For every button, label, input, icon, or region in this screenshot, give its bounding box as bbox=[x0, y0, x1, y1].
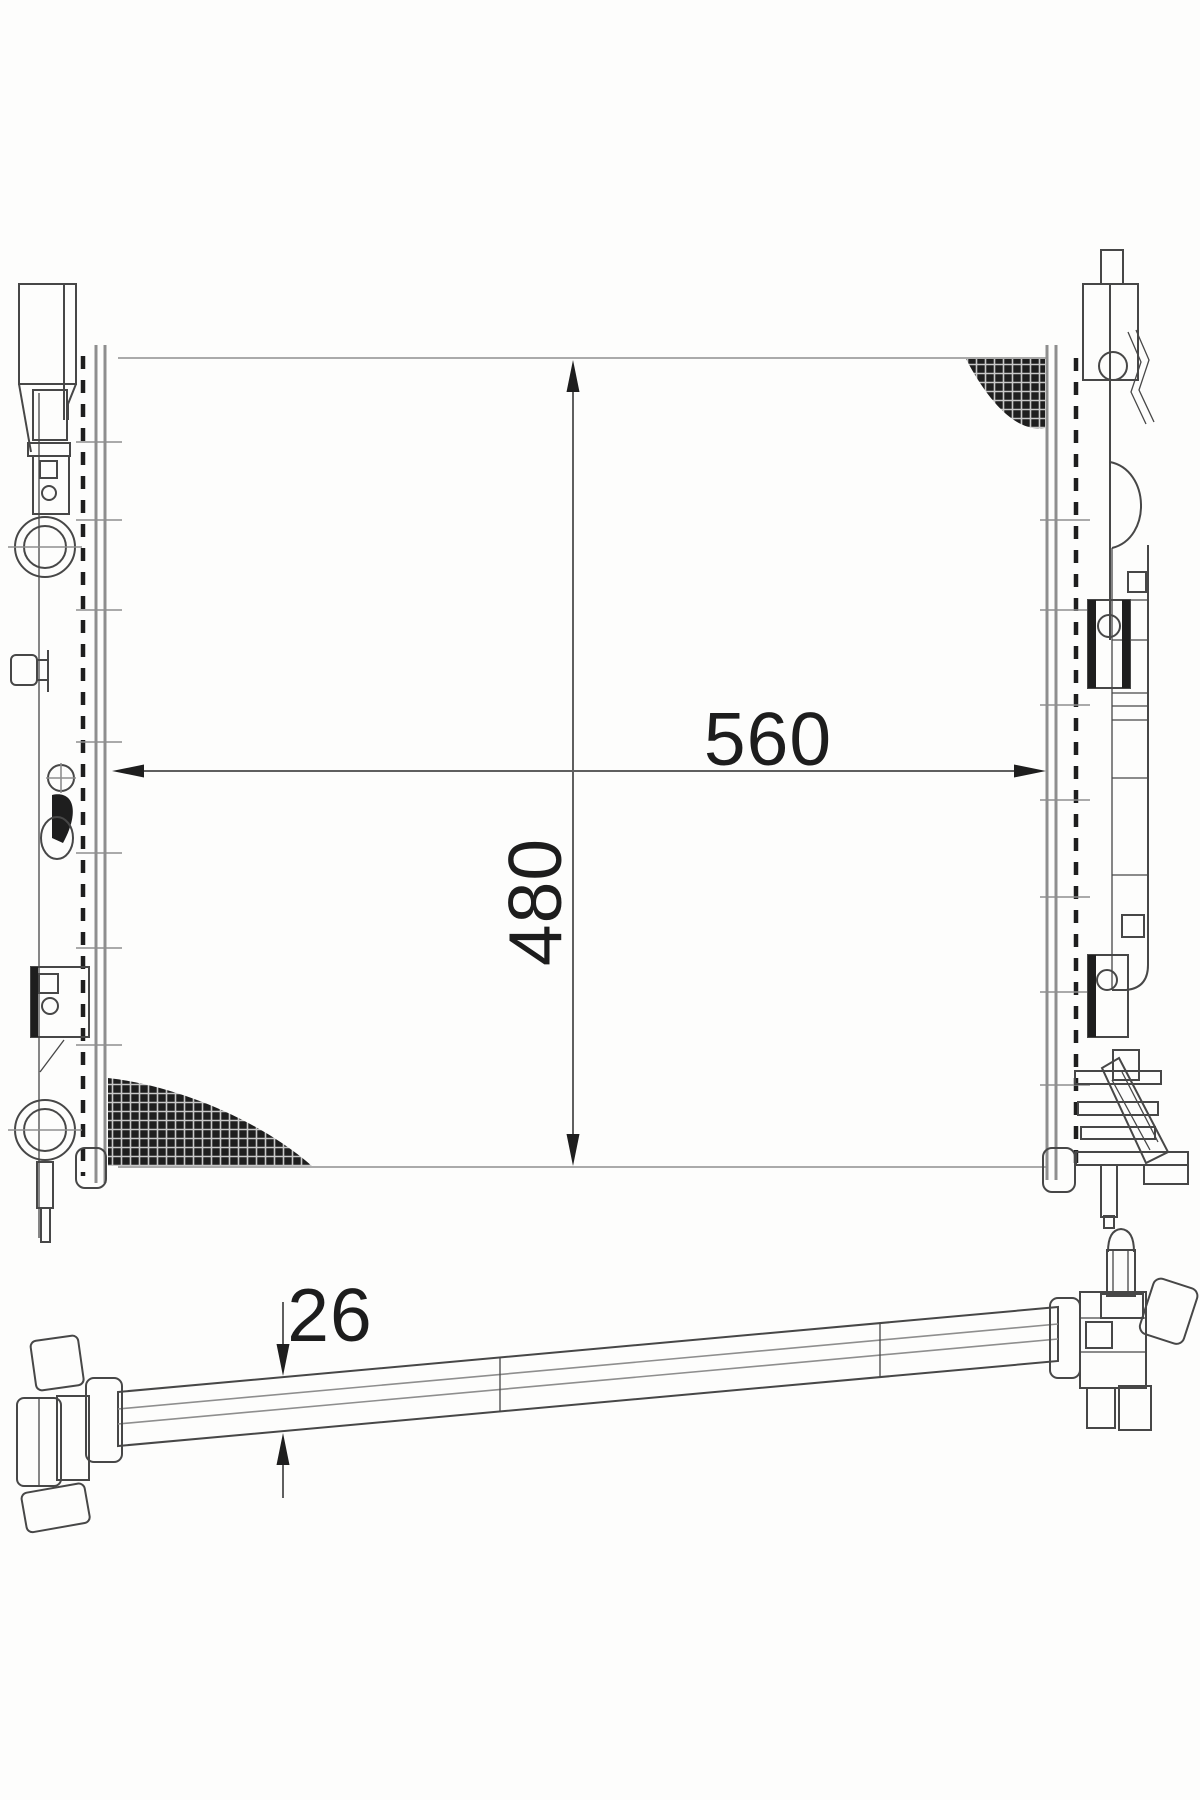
radiator-technical-drawing: 560 480 bbox=[0, 0, 1200, 1800]
left-side-tab bbox=[11, 650, 48, 692]
left-plate-end-cap bbox=[76, 1148, 106, 1188]
width-arrow-left bbox=[112, 765, 144, 778]
right-lower-bracket bbox=[1075, 1050, 1188, 1228]
radiator-core-outline bbox=[118, 358, 1046, 1167]
thickness-dimension: 26 bbox=[277, 1273, 373, 1498]
width-dimension-label: 560 bbox=[704, 697, 832, 781]
height-arrow-bottom bbox=[567, 1134, 580, 1166]
radiator-front-view bbox=[8, 250, 1188, 1242]
radiator-side-view bbox=[17, 1229, 1199, 1533]
left-clip bbox=[46, 763, 76, 793]
width-arrow-right bbox=[1014, 765, 1046, 778]
height-arrow-top bbox=[567, 360, 580, 392]
left-upper-port bbox=[8, 517, 82, 577]
right-side-tank bbox=[1040, 250, 1188, 1228]
thickness-arrow-up bbox=[277, 1433, 290, 1465]
right-top-bracket bbox=[1083, 250, 1154, 640]
height-dimension: 480 bbox=[493, 360, 580, 1166]
height-dimension-label: 480 bbox=[493, 838, 577, 966]
left-lower-port bbox=[8, 1100, 82, 1160]
left-top-bracket bbox=[19, 284, 76, 456]
side-view-core-bar bbox=[118, 1307, 1058, 1446]
left-lower-clamp bbox=[31, 967, 89, 1072]
corner-hatch-top-right bbox=[966, 359, 1045, 429]
thickness-dimension-label: 26 bbox=[287, 1273, 372, 1357]
technical-drawing-canvas: 560 480 bbox=[0, 0, 1200, 1800]
width-dimension: 560 bbox=[112, 697, 1046, 781]
side-view-right-fitting bbox=[1050, 1229, 1199, 1430]
side-view-left-fitting bbox=[17, 1335, 122, 1533]
right-bulge-arc bbox=[1110, 462, 1141, 548]
left-hose-fitting bbox=[41, 794, 73, 859]
right-lower-clamp bbox=[1088, 955, 1128, 1037]
right-upper-clamp bbox=[1088, 572, 1146, 688]
corner-hatch-bottom-left bbox=[108, 1078, 312, 1166]
left-side-tank bbox=[8, 284, 122, 1242]
